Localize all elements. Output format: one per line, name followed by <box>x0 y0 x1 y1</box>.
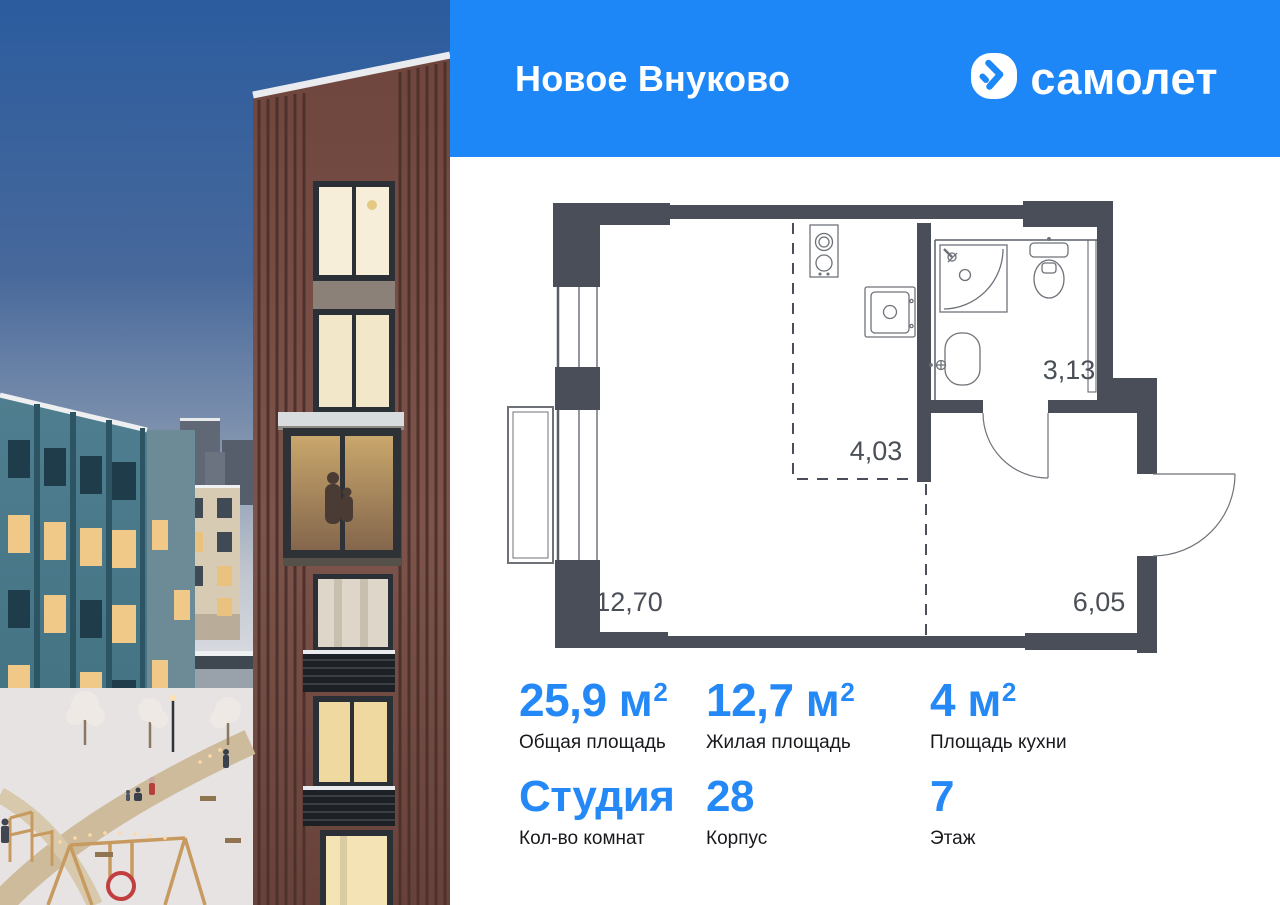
stat-label: Жилая площадь <box>706 732 930 754</box>
stat-building: 28 Корпус <box>706 774 930 850</box>
kitchen-sink-icon <box>865 287 915 337</box>
project-title: Новое Внуково <box>515 58 790 100</box>
plan-walls <box>553 201 1157 653</box>
brand-name: самолет <box>1030 56 1218 101</box>
stat-label: Общая площадь <box>519 732 706 754</box>
washbasin-icon <box>930 333 980 385</box>
lit-window-lower <box>313 309 395 413</box>
entrance-door <box>1153 474 1235 556</box>
bathroom-area: 3,13 <box>1043 355 1096 385</box>
playground <box>0 688 253 905</box>
kitchen-area: 4,03 <box>850 436 903 466</box>
living-room-area: 12,70 <box>595 587 663 617</box>
project-photo <box>0 0 450 905</box>
brand-logo: самолет <box>971 53 1218 104</box>
samolet-arrow-icon <box>971 53 1017 104</box>
stat-total-area: 25,9 м2 Общая площадь <box>519 676 706 754</box>
stat-label: Этаж <box>930 828 1150 850</box>
hallway-area: 6,05 <box>1073 587 1126 617</box>
balcony <box>508 407 553 563</box>
stove-icon <box>810 225 838 277</box>
stat-rooms: Студия Кол-во комнат <box>519 774 706 850</box>
zone-dashes <box>793 223 926 636</box>
bay-window <box>278 412 404 566</box>
stat-label: Площадь кухни <box>930 732 1150 754</box>
info-panel: Новое Внуково самолет <box>450 0 1280 905</box>
window-left <box>558 287 597 560</box>
stat-living-area: 12,7 м2 Жилая площадь <box>706 676 930 754</box>
stats-row-details: Студия Кол-во комнат 28 Корпус 7 Этаж <box>519 774 1150 850</box>
shower-icon <box>940 245 1007 312</box>
listing-card: Новое Внуково самолет <box>0 0 1280 905</box>
toilet-icon <box>1030 238 1068 298</box>
stat-label: Корпус <box>706 828 930 850</box>
floor-plan: 12,70 4,03 3,13 6,05 <box>500 195 1240 665</box>
stats-row-areas: 25,9 м2 Общая площадь 12,7 м2 Жилая площ… <box>519 676 1150 754</box>
stat-kitchen-area: 4 м2 Площадь кухни <box>930 676 1150 754</box>
lit-window-upper <box>313 181 395 281</box>
bathroom-door <box>983 413 1048 478</box>
brick-building <box>253 55 450 905</box>
header-banner: Новое Внуково самолет <box>450 0 1280 157</box>
stat-floor: 7 Этаж <box>930 774 1150 850</box>
stat-label: Кол-во комнат <box>519 828 706 850</box>
